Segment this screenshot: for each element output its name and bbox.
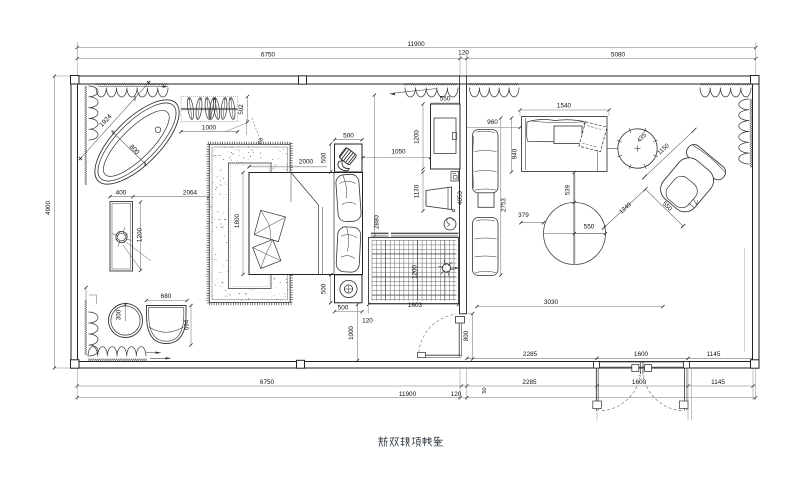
- svg-text:800: 800: [463, 330, 470, 341]
- svg-text:1000: 1000: [202, 125, 217, 132]
- svg-text:1200: 1200: [137, 227, 144, 242]
- svg-text:1145: 1145: [707, 351, 721, 358]
- svg-text:1540: 1540: [557, 103, 572, 110]
- svg-text:2285: 2285: [522, 379, 537, 386]
- svg-text:6750: 6750: [261, 52, 276, 59]
- svg-text:2285: 2285: [523, 351, 538, 358]
- svg-text:550: 550: [584, 224, 595, 231]
- svg-text:1603: 1603: [408, 302, 423, 309]
- svg-text:5080: 5080: [611, 52, 626, 59]
- svg-text:1050: 1050: [391, 149, 406, 156]
- svg-text:1200: 1200: [412, 265, 419, 279]
- svg-text:2880: 2880: [374, 215, 381, 229]
- svg-text:11900: 11900: [399, 391, 417, 398]
- svg-text:1200: 1200: [413, 130, 420, 144]
- svg-text:1600: 1600: [632, 379, 647, 386]
- svg-text:1800: 1800: [234, 213, 241, 228]
- svg-text:680: 680: [161, 293, 172, 300]
- svg-text:2753: 2753: [501, 198, 508, 212]
- svg-text:2064: 2064: [183, 190, 198, 197]
- svg-text:11900: 11900: [407, 41, 425, 48]
- svg-text:400: 400: [116, 190, 127, 197]
- svg-text:500: 500: [343, 133, 354, 140]
- svg-text:1130: 1130: [413, 184, 420, 198]
- svg-text:940: 940: [512, 148, 519, 159]
- svg-text:500: 500: [338, 305, 349, 312]
- svg-text:500: 500: [321, 152, 328, 163]
- svg-text:502: 502: [238, 104, 245, 115]
- svg-text:300: 300: [116, 309, 123, 320]
- svg-text:4900: 4900: [45, 200, 52, 215]
- svg-text:120: 120: [362, 318, 373, 325]
- svg-text:4050: 4050: [457, 191, 464, 205]
- svg-text:50: 50: [482, 387, 488, 393]
- svg-text:539: 539: [565, 184, 572, 195]
- svg-text:6750: 6750: [260, 379, 275, 386]
- svg-text:2000: 2000: [299, 159, 314, 166]
- svg-text:500: 500: [321, 283, 328, 294]
- svg-text:3030: 3030: [544, 299, 559, 306]
- svg-text:960: 960: [487, 119, 498, 126]
- svg-text:1000: 1000: [348, 326, 355, 340]
- svg-text:694: 694: [184, 319, 191, 330]
- svg-text:1600: 1600: [634, 351, 649, 358]
- svg-text:379: 379: [518, 212, 529, 219]
- svg-text:1145: 1145: [711, 379, 725, 386]
